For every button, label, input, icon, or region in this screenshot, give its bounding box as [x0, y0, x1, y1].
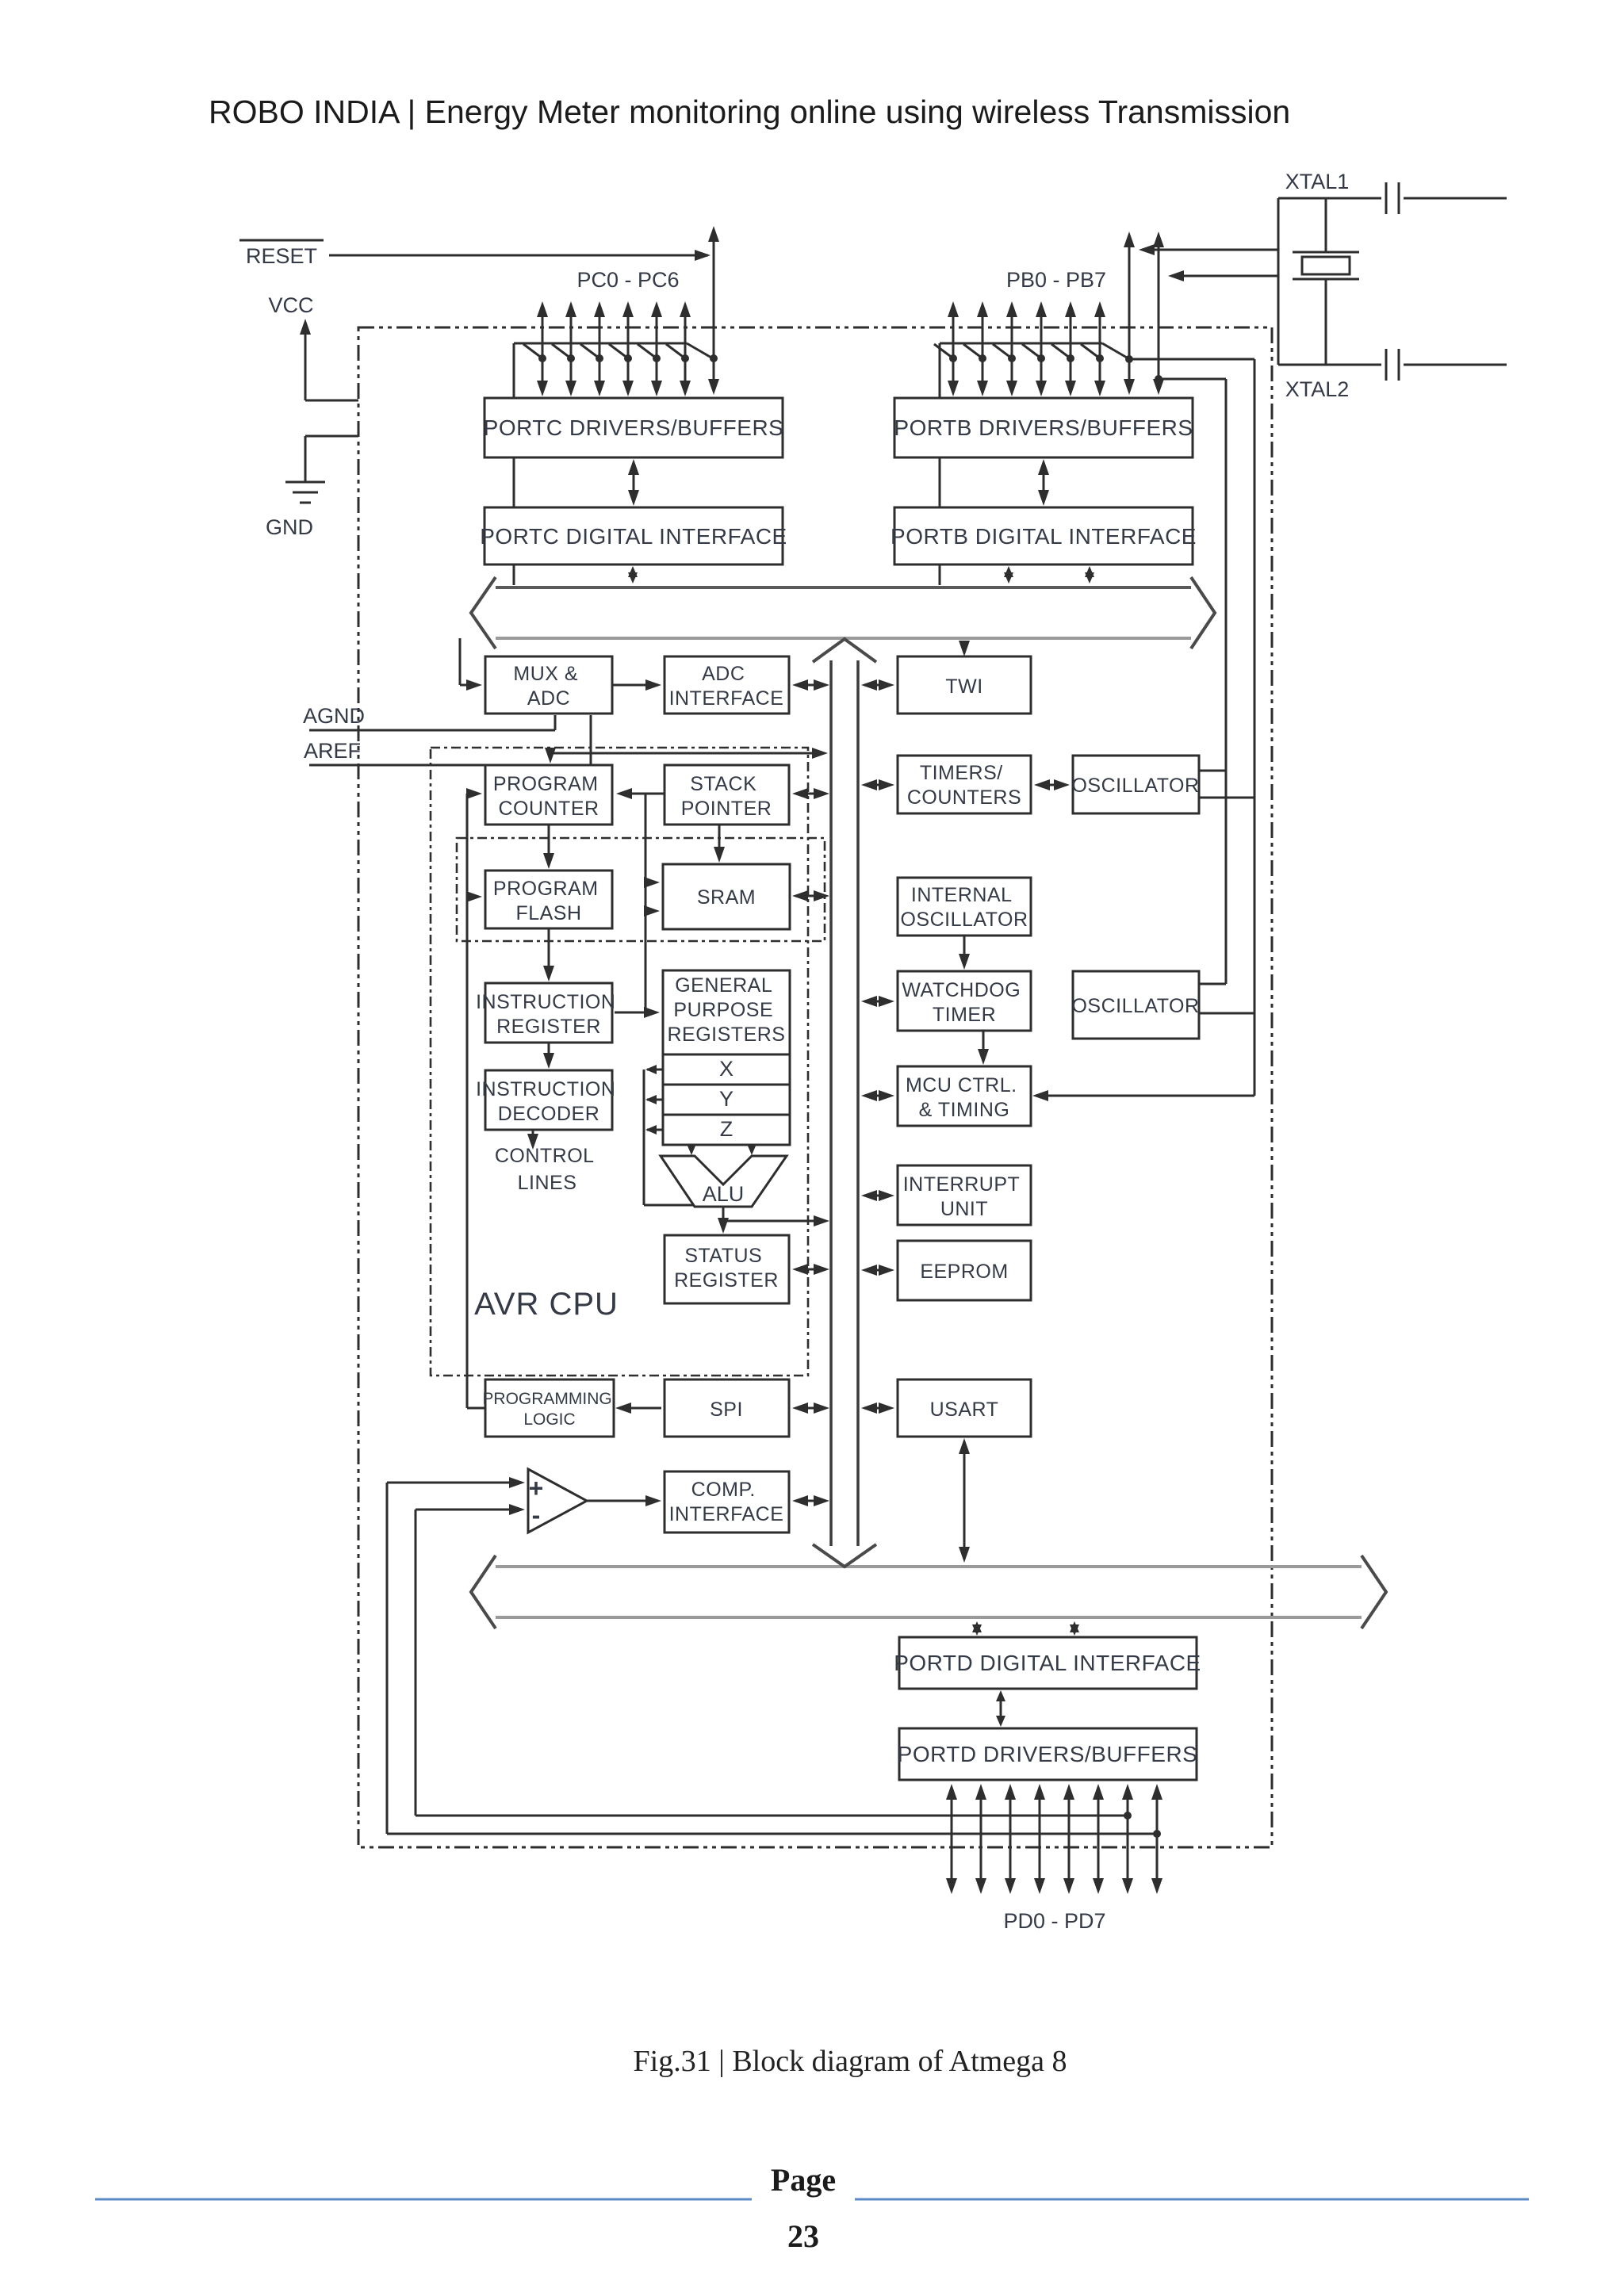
arrowhead [651, 301, 662, 317]
arrowhead [695, 250, 710, 261]
arrowhead [644, 1007, 660, 1018]
arrowhead [628, 490, 639, 506]
comparator-minus: - [532, 1501, 541, 1529]
block-twi-label: TWI [945, 675, 982, 698]
xtal1-label: XTAL1 [1285, 170, 1350, 193]
arrowhead [879, 779, 894, 790]
arrowhead [978, 1049, 989, 1065]
arrowhead [959, 954, 970, 970]
arrowhead [645, 1095, 657, 1104]
arrowhead [1151, 1784, 1162, 1800]
arrowhead [543, 853, 554, 869]
block-oscillator-bottom-label: OSCILLATOR [1071, 995, 1199, 1017]
arrowhead [537, 301, 548, 317]
wire [687, 343, 711, 358]
arrowhead [300, 319, 311, 335]
arrowhead [959, 641, 970, 656]
arrowhead [644, 877, 660, 888]
blocks: PORTC DRIVERS/BUFFERS PORTC DIGITAL INTE… [474, 398, 1201, 1780]
arrowhead [1038, 459, 1049, 475]
arrowhead [996, 1690, 1005, 1701]
arrowhead [814, 890, 829, 901]
block-gpr-label: GENERAL PURPOSE REGISTERS [668, 974, 786, 1046]
arrowhead [1094, 381, 1105, 396]
block-usart-label: USART [930, 1399, 999, 1421]
junction-dot [1124, 1812, 1132, 1820]
arrowhead [1124, 232, 1135, 247]
xtal2-label: XTAL2 [1285, 377, 1350, 401]
top-data-bus [471, 577, 1215, 649]
block-sram-label: SRAM [697, 886, 756, 909]
arrowhead [948, 381, 959, 396]
arrowhead [466, 679, 482, 691]
arrowhead [861, 996, 877, 1007]
arrowhead [879, 1190, 894, 1201]
arrowhead [879, 996, 894, 1007]
arrowhead [1054, 779, 1070, 790]
arrowhead [861, 1402, 877, 1414]
arrowhead [1036, 381, 1047, 396]
arrowhead [792, 1402, 808, 1414]
arrowhead [594, 381, 605, 396]
diagram: + - ALU PORTC DRIVERS/BUFFERS PORTC DIGI… [239, 170, 1507, 1933]
arrowhead [543, 966, 554, 982]
arrowhead [622, 301, 634, 317]
junction-dot [1096, 354, 1104, 362]
block-portc-drivers-label: PORTC DRIVERS/BUFFERS [484, 415, 784, 440]
arrowhead [948, 301, 959, 317]
arrowhead [1139, 244, 1155, 255]
junction-dot [1037, 354, 1045, 362]
arrowhead [651, 381, 662, 396]
junction-dot [1008, 354, 1016, 362]
gnd-label: GND [266, 515, 313, 539]
avr-cpu-label: AVR CPU [474, 1287, 619, 1322]
arrowhead [1065, 301, 1076, 317]
arrowhead [622, 381, 634, 396]
document-page: ROBO INDIA | Energy Meter monitoring onl… [0, 0, 1624, 2296]
arrowhead [879, 1402, 894, 1414]
junction-dot [1153, 1830, 1161, 1838]
arrowhead [1034, 1784, 1045, 1800]
arrowhead [645, 679, 661, 691]
arrowhead [861, 679, 877, 691]
arrowhead [814, 679, 829, 691]
arrowhead [1006, 301, 1017, 317]
page-header: ROBO INDIA | Energy Meter monitoring onl… [209, 94, 1290, 130]
arrowhead [565, 301, 576, 317]
arrowhead [879, 1265, 894, 1276]
arrowhead [959, 1438, 970, 1454]
arrowhead [975, 1878, 986, 1894]
junction-dot [538, 354, 546, 362]
arrowhead [1122, 1784, 1133, 1800]
arrowhead [792, 679, 808, 691]
arrowhead [1124, 379, 1135, 395]
arrowhead [879, 1090, 894, 1101]
wire [1102, 343, 1127, 358]
arrowhead [708, 379, 719, 395]
arrowhead [812, 748, 828, 759]
crystal-body [1302, 257, 1350, 274]
arrowhead [1032, 1090, 1048, 1101]
arrowhead [1094, 301, 1105, 317]
arrowhead [1004, 572, 1013, 584]
figure-caption: Fig.31 | Block diagram of Atmega 8 [634, 2045, 1067, 2078]
bottom-data-bus [471, 1556, 1386, 1628]
footer-page-number: 23 [787, 2218, 819, 2254]
arrowhead [645, 1065, 657, 1074]
arrowhead [565, 381, 576, 396]
arrowhead [975, 1784, 986, 1800]
block-eeprom-label: EEPROM [920, 1261, 1008, 1283]
arrowhead [628, 572, 638, 584]
junction-dot [596, 354, 603, 362]
footer-page-label: Page [771, 2162, 836, 2198]
block-portb-digital-label: PORTB DIGITAL INTERFACE [891, 524, 1197, 549]
junction-dot [624, 354, 632, 362]
pd-range-label: PD0 - PD7 [1003, 1909, 1105, 1933]
arrowhead [946, 1878, 957, 1894]
arrowhead [1034, 1878, 1045, 1894]
arrowhead [545, 748, 556, 763]
reset-label: RESET [246, 244, 317, 268]
arrowhead [814, 1215, 829, 1226]
junction-dot [979, 354, 986, 362]
aref-label: AREF [304, 739, 361, 763]
arrowhead [861, 1090, 877, 1101]
junction-dot [710, 354, 718, 362]
arrowhead [1034, 779, 1050, 790]
comparator-plus: + [529, 1474, 544, 1502]
junction-dot [1067, 354, 1074, 362]
arrowhead [879, 679, 894, 691]
arrowhead [466, 891, 482, 902]
arrowhead [644, 905, 660, 916]
arrowhead [708, 226, 719, 242]
arrowhead [946, 1784, 957, 1800]
alu-label: ALU [703, 1182, 745, 1206]
block-reg-y-label: Y [719, 1087, 733, 1111]
arrowhead [714, 847, 725, 863]
pc-range-label: PC0 - PC6 [576, 268, 679, 292]
arrowhead [861, 1190, 877, 1201]
vcc-label: VCC [268, 293, 313, 317]
arrowhead [680, 381, 691, 396]
block-reg-x-label: X [719, 1057, 733, 1081]
bus-spine [813, 639, 876, 1567]
arrowhead [543, 1053, 554, 1069]
arrowhead [718, 1218, 729, 1234]
arrowhead [792, 1495, 808, 1506]
junction-dot [681, 354, 689, 362]
block-portb-drivers-label: PORTB DRIVERS/BUFFERS [894, 415, 1193, 440]
arrowhead [814, 1495, 829, 1506]
junction-dot [949, 354, 957, 362]
arrowhead [814, 788, 829, 799]
arrowhead [645, 1495, 661, 1506]
arrowhead [814, 1264, 829, 1275]
arrowhead [1005, 1878, 1016, 1894]
arrowhead [1153, 232, 1164, 247]
arrowhead [616, 788, 632, 799]
block-portc-digital-label: PORTC DIGITAL INTERFACE [480, 524, 787, 549]
arrowhead [1093, 1878, 1104, 1894]
block-portd-digital-label: PORTD DIGITAL INTERFACE [894, 1651, 1201, 1675]
arrowhead [1093, 1784, 1104, 1800]
arrowhead [628, 459, 639, 475]
junction-dot [653, 354, 661, 362]
arrowhead [680, 301, 691, 317]
arrowhead [792, 890, 808, 901]
arrowhead [861, 1265, 877, 1276]
page-footer: Page 23 [95, 2162, 1529, 2254]
arrowhead [615, 1402, 631, 1414]
arrowhead [792, 788, 808, 799]
block-portd-drivers-label: PORTD DRIVERS/BUFFERS [898, 1742, 1198, 1766]
agnd-label: AGND [303, 704, 365, 728]
junction-dot [1155, 375, 1162, 383]
arrowhead [1151, 1878, 1162, 1894]
arrowhead [1168, 270, 1184, 281]
arrowhead [594, 301, 605, 317]
arrowhead [1005, 1784, 1016, 1800]
page-canvas: ROBO INDIA | Energy Meter monitoring onl… [0, 0, 1624, 2296]
arrowhead [509, 1477, 525, 1488]
block-oscillator-top-label: OSCILLATOR [1071, 775, 1199, 797]
arrowhead [537, 381, 548, 396]
arrowhead [1122, 1878, 1133, 1894]
junction-dot [567, 354, 575, 362]
arrowhead [996, 1716, 1005, 1727]
block-spi-label: SPI [710, 1399, 743, 1421]
arrowhead [1006, 381, 1017, 396]
junction-dot [1125, 355, 1133, 363]
arrowhead [861, 779, 877, 790]
arrowhead [977, 381, 988, 396]
arrowhead [977, 301, 988, 317]
arrowhead [814, 1402, 829, 1414]
pb-range-label: PB0 - PB7 [1006, 268, 1106, 292]
control-lines-label: CONTROL LINES [495, 1145, 599, 1194]
arrowhead [645, 1125, 657, 1135]
arrowhead [1038, 490, 1049, 506]
arrowhead [1085, 572, 1094, 584]
arrowhead [509, 1504, 525, 1515]
arrowhead [792, 1264, 808, 1275]
arrowhead [1065, 381, 1076, 396]
arrowhead [1036, 301, 1047, 317]
arrowhead [1063, 1878, 1074, 1894]
block-reg-z-label: Z [720, 1117, 733, 1141]
arrowhead [466, 788, 482, 799]
arrowhead [1063, 1784, 1074, 1800]
arrowhead [959, 1547, 970, 1563]
